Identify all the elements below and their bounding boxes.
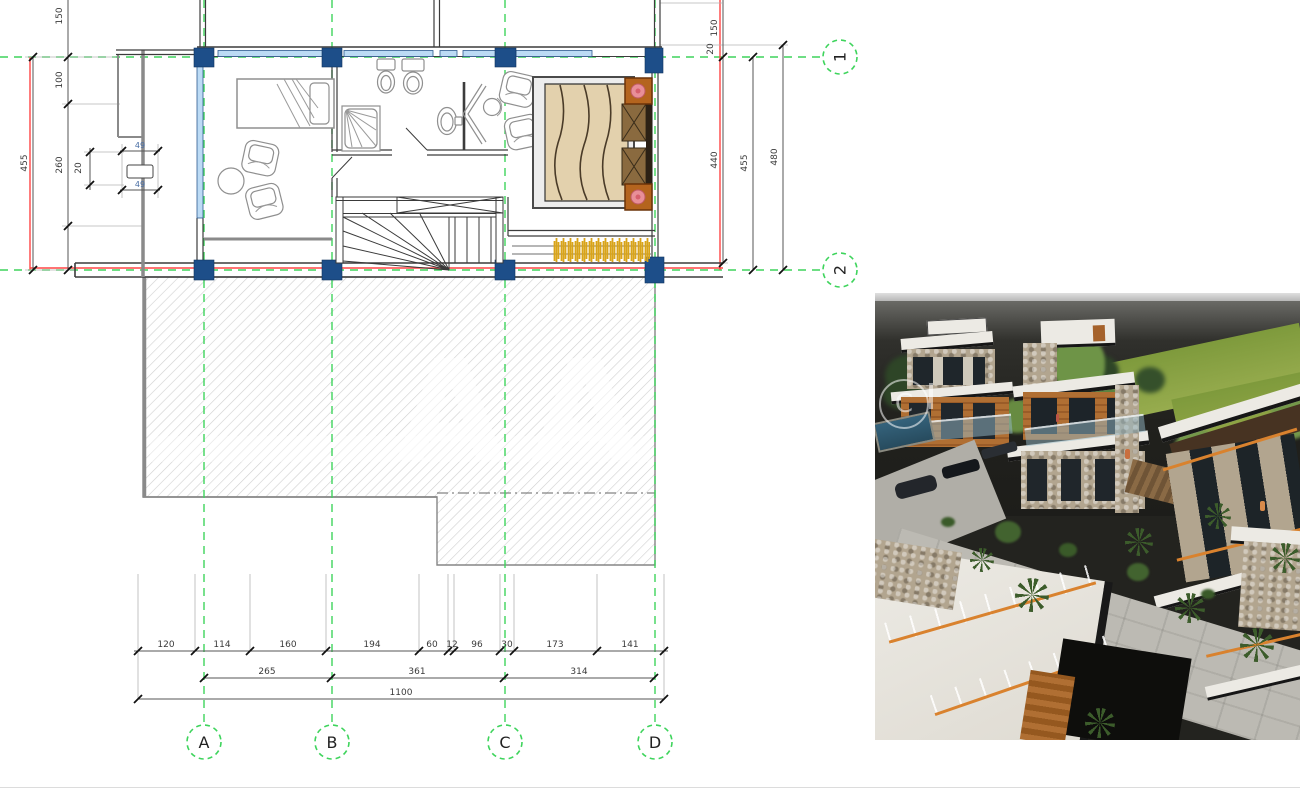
palm-tree — [1175, 593, 1205, 623]
fixture-box — [127, 165, 153, 178]
dim-left-150: 150 — [55, 7, 65, 24]
dim-bottom: 194 — [363, 640, 380, 650]
dim-left-20: 20 — [74, 162, 84, 174]
column — [495, 48, 516, 67]
grid-label-b: B — [327, 733, 338, 752]
window — [440, 51, 457, 57]
window — [463, 51, 496, 57]
photo-watermark: C — [879, 379, 929, 429]
watermark-letter: A — [531, 331, 639, 494]
grid-label-c: C — [499, 733, 510, 752]
armchair-icon — [244, 182, 285, 221]
grid-bubble-2: 2 — [823, 253, 857, 287]
wood-deck — [1020, 670, 1075, 740]
page: A A — [0, 0, 1300, 800]
dim-bottom: 314 — [570, 667, 587, 677]
window — [344, 51, 433, 57]
dim-bottom-total: 1100 — [390, 688, 413, 698]
dim-bottom: 265 — [258, 667, 275, 677]
grid-bubble-a: A — [187, 725, 221, 759]
render-photo: C — [875, 293, 1300, 740]
dim-49: 49 — [135, 180, 145, 189]
palm-tree — [1085, 708, 1115, 738]
grid-label-a: A — [199, 733, 210, 752]
grid-label-1: 1 — [831, 52, 850, 62]
dim-right-150: 150 — [710, 19, 720, 36]
washbasin-icon — [438, 108, 463, 135]
villa-upper-floor — [907, 349, 995, 389]
grid-bubble-1: 1 — [823, 40, 857, 74]
toilet-icon — [402, 59, 424, 94]
curtain-fringe — [553, 238, 650, 262]
grid-label-2: 2 — [831, 265, 850, 275]
floor-plan-drawing: A A — [0, 0, 875, 800]
palm-tree — [1125, 528, 1153, 556]
desk-and-chair-icon — [463, 84, 502, 144]
dim-right-480: 480 — [770, 148, 780, 165]
dim-left-260: 260 — [55, 156, 65, 173]
dim-bottom: 120 — [157, 640, 174, 650]
round-table-icon — [218, 168, 244, 194]
dim-bottom: 60 — [426, 640, 438, 650]
column — [194, 48, 214, 67]
palm-tree — [1015, 578, 1049, 612]
single-bed-icon — [237, 79, 334, 128]
palm-tree — [1270, 543, 1300, 573]
roof-door — [1093, 325, 1106, 341]
divider-line — [0, 787, 1300, 788]
dim-bottom: 173 — [546, 640, 563, 650]
nightstand-icon — [625, 78, 652, 104]
window — [218, 51, 324, 57]
palm-tree — [1205, 503, 1231, 529]
dim-right-440: 440 — [710, 151, 720, 168]
column — [322, 48, 342, 67]
window — [516, 51, 592, 57]
dim-bottom: 141 — [621, 640, 638, 650]
bidet-icon — [377, 59, 395, 93]
dim-left-100: 100 — [55, 71, 65, 88]
column — [194, 260, 214, 280]
palm-tree — [1240, 628, 1274, 662]
dim-right-455: 455 — [740, 154, 750, 171]
grid-bubble-d: D — [638, 725, 672, 759]
palm-tree — [970, 548, 994, 572]
dim-bottom: 12 — [446, 640, 457, 650]
grid-label-d: D — [649, 733, 661, 752]
photo-watermark-bar — [929, 383, 933, 409]
nightstand-icon — [625, 184, 652, 210]
window — [197, 62, 203, 218]
shower-icon — [342, 106, 380, 151]
grid-bubble-b: B — [315, 725, 349, 759]
armchair-icon — [240, 139, 280, 177]
dim-49: 49 — [135, 141, 145, 150]
column — [645, 48, 663, 73]
dim-right-20: 20 — [706, 43, 716, 55]
dim-bottom: 114 — [213, 640, 230, 650]
staircase-icon — [336, 197, 503, 270]
people-figures — [1125, 449, 1130, 459]
dim-bottom: 30 — [501, 640, 513, 650]
dim-left-455: 455 — [20, 154, 30, 171]
watermark-letter: A — [396, 331, 504, 494]
window-row — [913, 357, 985, 385]
dim-bottom: 96 — [471, 640, 483, 650]
dim-bottom: 160 — [279, 640, 296, 650]
dim-bottom: 361 — [408, 667, 425, 677]
bushes — [995, 521, 1021, 543]
grid-bubble-c: C — [488, 725, 522, 759]
